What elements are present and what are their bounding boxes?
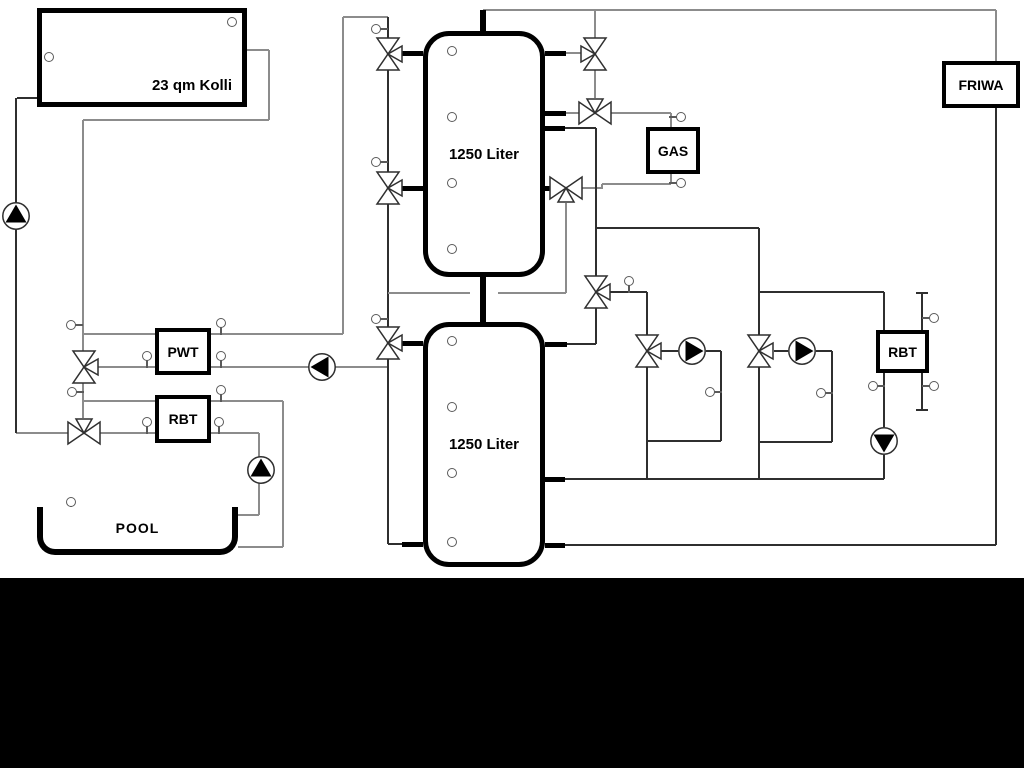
temperature-sensor	[227, 17, 237, 27]
temperature-sensor	[66, 497, 76, 507]
pipe-stub	[545, 543, 565, 548]
temperature-sensor	[447, 178, 457, 188]
pipe-segment	[387, 203, 389, 328]
three-way-valve	[373, 37, 403, 71]
temperature-sensor	[676, 178, 686, 188]
pipe-segment	[596, 227, 759, 229]
pipe-segment	[388, 292, 470, 294]
pipe-segment	[595, 307, 597, 344]
temperature-sensor	[447, 468, 457, 478]
pipe-segment	[916, 292, 928, 294]
pipe-stub	[545, 126, 565, 131]
pwt-label: PWT	[167, 344, 198, 360]
temperature-sensor	[624, 276, 634, 286]
pipe-segment	[646, 292, 648, 336]
pipe-segment	[17, 97, 37, 99]
schematic-canvas: 23 qm Kolli 1250 Liter 1250 Liter PWT RB…	[0, 0, 1024, 768]
bottom-black-bar	[0, 578, 1024, 768]
pool-basin: POOL	[37, 507, 238, 555]
pipe-segment	[602, 183, 671, 185]
temperature-sensor	[447, 46, 457, 56]
pipe-stub	[545, 342, 567, 347]
sensor-stem	[146, 360, 148, 368]
temperature-sensor	[447, 537, 457, 547]
pipe-stub	[402, 542, 423, 547]
rbt-right-heat-exchanger-box: RBT	[876, 330, 929, 373]
temperature-sensor	[676, 112, 686, 122]
temperature-sensor	[447, 336, 457, 346]
pipe-segment	[247, 49, 269, 51]
three-way-valve	[580, 37, 610, 71]
friwa-station-box: FRIWA	[942, 61, 1020, 108]
sensor-stem	[380, 161, 388, 163]
pipe-segment	[567, 343, 596, 345]
friwa-label: FRIWA	[958, 77, 1003, 93]
sensor-stem	[380, 318, 388, 320]
three-way-valve	[67, 418, 101, 448]
three-way-valve	[632, 334, 662, 368]
pipe-segment	[343, 16, 388, 18]
pipe-segment	[916, 409, 928, 411]
pipe-stub	[480, 10, 486, 31]
pool-label: POOL	[43, 520, 232, 536]
temperature-sensor	[371, 157, 381, 167]
sensor-stem	[628, 285, 630, 293]
buffer-tank-bottom: 1250 Liter	[423, 322, 545, 567]
temperature-sensor	[447, 402, 457, 412]
pipe-segment	[758, 228, 760, 335]
pipe-segment	[82, 120, 84, 352]
pump	[869, 426, 899, 456]
pipe-segment	[720, 351, 722, 441]
temperature-sensor	[929, 313, 939, 323]
temperature-sensor	[142, 351, 152, 361]
three-way-valve	[581, 275, 611, 309]
pipe-segment	[831, 351, 833, 442]
pipe-segment	[15, 229, 17, 433]
pipe-segment	[258, 433, 260, 457]
pipe-segment	[268, 50, 270, 120]
pipe-segment	[387, 69, 389, 173]
gas-boiler-box: GAS	[646, 127, 700, 174]
pipe-segment	[238, 514, 259, 516]
three-way-valve	[578, 98, 612, 128]
pipe-segment	[342, 17, 344, 334]
pump	[246, 455, 276, 485]
sensor-stem	[146, 426, 148, 434]
pump	[307, 352, 337, 382]
pipe-segment	[238, 546, 283, 548]
pipe-segment	[580, 187, 602, 189]
temperature-sensor	[214, 417, 224, 427]
pump	[677, 336, 707, 366]
sensor-stem	[825, 392, 833, 394]
pipe-segment	[594, 10, 596, 39]
pipe-segment	[647, 440, 721, 442]
pipe-segment	[498, 292, 566, 294]
pipe-segment	[883, 373, 885, 427]
sensor-stem	[220, 360, 222, 368]
temperature-sensor	[371, 314, 381, 324]
pipe-segment	[566, 52, 581, 54]
temperature-sensor	[447, 244, 457, 254]
pipe-segment	[883, 455, 885, 479]
pipe-stub	[402, 341, 423, 346]
rbt-pool-heat-exchanger-box: RBT	[155, 395, 211, 443]
temperature-sensor	[868, 381, 878, 391]
pipe-segment	[995, 108, 997, 545]
three-way-valve	[373, 171, 403, 205]
pump	[787, 336, 817, 366]
three-way-valve	[744, 334, 774, 368]
temperature-sensor	[216, 351, 226, 361]
pipe-segment	[670, 113, 672, 127]
pipe-segment	[774, 350, 788, 352]
pipe-segment	[83, 119, 269, 121]
buffer-tank-bottom-label: 1250 Liter	[449, 436, 519, 453]
pipe-segment	[565, 203, 567, 293]
rbt-pool-label: RBT	[169, 411, 198, 427]
temperature-sensor	[67, 387, 77, 397]
sensor-stem	[218, 426, 220, 434]
pipe-segment	[595, 128, 597, 277]
pipe-segment	[610, 112, 671, 114]
temperature-sensor	[216, 318, 226, 328]
three-way-valve	[69, 350, 99, 384]
pipe-segment	[282, 401, 284, 547]
pipe-segment	[258, 483, 260, 515]
pipe-stub	[402, 186, 423, 191]
pipe-segment	[759, 441, 832, 443]
sensor-stem	[714, 391, 722, 393]
pwt-heat-exchanger-box: PWT	[155, 328, 211, 375]
gas-boiler-label: GAS	[658, 143, 688, 159]
sensor-stem	[75, 324, 83, 326]
pipe-segment	[335, 366, 388, 368]
pipe-stub	[402, 51, 423, 56]
sensor-stem	[220, 327, 222, 335]
pipe-segment	[565, 544, 996, 546]
pipe-segment	[83, 333, 343, 335]
pipe-segment	[15, 98, 17, 203]
rbt-right-label: RBT	[888, 344, 917, 360]
pipe-segment	[816, 350, 832, 352]
solar-collector-box: 23 qm Kolli	[37, 8, 247, 107]
solar-collector-label: 23 qm Kolli	[152, 77, 232, 94]
pipe-segment	[16, 432, 72, 434]
sensor-stem	[380, 28, 388, 30]
sensor-stem	[220, 394, 222, 402]
pipe-segment	[758, 366, 760, 479]
pipe-segment	[594, 69, 596, 98]
temperature-sensor	[447, 112, 457, 122]
temperature-sensor	[371, 24, 381, 34]
pump	[1, 201, 31, 231]
temperature-sensor	[816, 388, 826, 398]
temperature-sensor	[142, 417, 152, 427]
buffer-tank-top: 1250 Liter	[423, 31, 545, 277]
pipe-stub	[545, 477, 565, 482]
pipe-segment	[565, 478, 884, 480]
temperature-sensor	[929, 381, 939, 391]
pipe-segment	[387, 358, 389, 544]
pipe-segment	[995, 10, 997, 61]
pipe-stub	[480, 277, 486, 322]
buffer-tank-top-label: 1250 Liter	[449, 146, 519, 163]
temperature-sensor	[44, 52, 54, 62]
pipe-segment	[661, 350, 678, 352]
sensor-stem	[877, 385, 885, 387]
temperature-sensor	[216, 385, 226, 395]
pipe-segment	[706, 350, 721, 352]
pipe-segment	[883, 292, 885, 330]
three-way-valve	[549, 173, 583, 203]
three-way-valve	[373, 326, 403, 360]
pipe-segment	[759, 291, 884, 293]
pipe-segment	[646, 366, 648, 479]
temperature-sensor	[705, 387, 715, 397]
temperature-sensor	[66, 320, 76, 330]
pipe-stub	[545, 111, 566, 116]
pipe-stub	[545, 51, 566, 56]
sensor-stem	[76, 391, 84, 393]
pipe-segment	[483, 9, 996, 11]
